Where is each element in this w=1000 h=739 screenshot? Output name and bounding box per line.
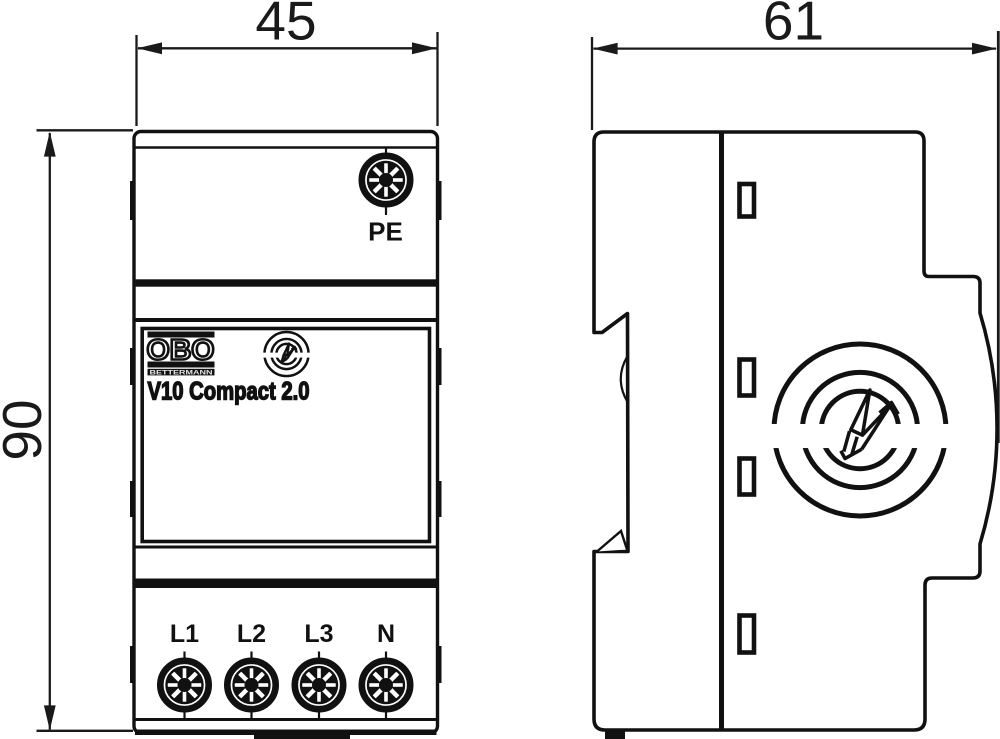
svg-text:45: 45 [255, 0, 316, 52]
svg-text:L3: L3 [304, 620, 333, 648]
svg-text:N: N [377, 620, 395, 648]
svg-text:90: 90 [0, 399, 53, 460]
svg-text:V10 Compact 2.0: V10 Compact 2.0 [148, 378, 310, 406]
svg-text:PE: PE [368, 217, 403, 247]
svg-text:BETTERMANN: BETTERMANN [150, 371, 213, 377]
svg-text:61: 61 [763, 0, 824, 52]
svg-text:L1: L1 [170, 620, 199, 648]
svg-text:L2: L2 [237, 620, 266, 648]
